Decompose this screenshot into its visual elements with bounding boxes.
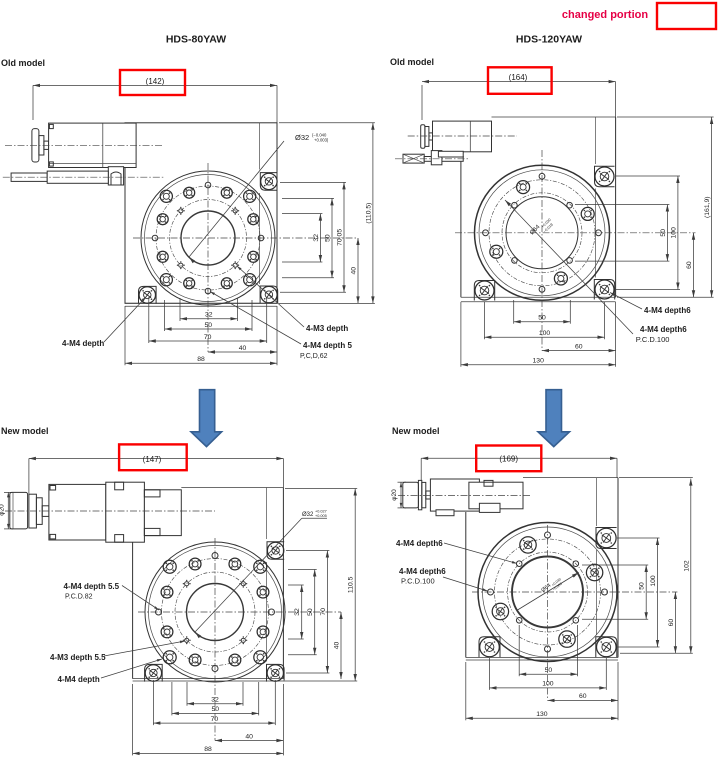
svg-text:50: 50	[212, 706, 220, 713]
svg-text:+0.027: +0.027	[315, 510, 327, 514]
svg-text:70.05: 70.05	[337, 229, 344, 246]
svg-text:Old model: Old model	[390, 57, 434, 67]
svg-text:New model: New model	[392, 426, 440, 436]
svg-text:4-M4 depth6: 4-M4 depth6	[644, 306, 691, 315]
svg-text:130: 130	[533, 358, 545, 365]
svg-text:4-M4 depth: 4-M4 depth	[62, 339, 104, 348]
svg-text:4-M4 depth6: 4-M4 depth6	[640, 325, 687, 334]
svg-text:40: 40	[351, 267, 358, 275]
svg-text:New model: New model	[1, 426, 49, 436]
svg-text:40: 40	[334, 642, 341, 650]
svg-text:4-M4 depth6: 4-M4 depth6	[396, 539, 443, 548]
svg-text:P,C,D,62: P,C,D,62	[300, 353, 328, 360]
svg-text:100: 100	[670, 227, 677, 239]
svg-text:110.5: 110.5	[348, 576, 355, 593]
svg-text:(142): (142)	[146, 77, 165, 86]
svg-text:P.C.D.100: P.C.D.100	[636, 335, 670, 344]
svg-text:50: 50	[545, 667, 553, 674]
svg-text:φ20: φ20	[0, 504, 6, 516]
svg-text:4-M4 depth 5: 4-M4 depth 5	[303, 341, 352, 350]
svg-text:40: 40	[239, 345, 247, 352]
svg-text:70: 70	[211, 716, 219, 723]
svg-text:+0.003): +0.003)	[314, 138, 329, 143]
svg-text:100: 100	[539, 330, 551, 337]
svg-text:changed portion: changed portion	[562, 9, 648, 21]
svg-text:60: 60	[575, 343, 583, 350]
svg-text:32: 32	[313, 234, 320, 242]
svg-text:Ø32: Ø32	[302, 512, 314, 518]
svg-text:4-M4 depth6: 4-M4 depth6	[399, 567, 446, 576]
svg-text:130: 130	[536, 711, 548, 718]
svg-text:50: 50	[660, 229, 667, 237]
svg-text:(110.5): (110.5)	[365, 203, 372, 224]
svg-text:100: 100	[650, 575, 657, 587]
svg-text:32: 32	[205, 312, 213, 319]
svg-text:50: 50	[307, 608, 314, 616]
svg-text:60: 60	[579, 693, 587, 700]
svg-text:(147): (147)	[143, 455, 162, 464]
svg-text:P.C.D.100: P.C.D.100	[401, 577, 435, 586]
svg-text:φ20: φ20	[391, 489, 398, 501]
svg-text:(169): (169)	[499, 455, 518, 464]
svg-text:Ø32: Ø32	[295, 133, 309, 142]
svg-text:40: 40	[245, 733, 253, 740]
svg-text:88: 88	[197, 356, 205, 363]
svg-text:50: 50	[325, 234, 332, 242]
svg-text:HDS-80YAW: HDS-80YAW	[166, 34, 226, 46]
svg-text:4-M3 depth: 4-M3 depth	[306, 324, 348, 333]
svg-text:4-M3 depth 5.5: 4-M3 depth 5.5	[50, 653, 106, 662]
svg-text:+0.005: +0.005	[315, 514, 327, 518]
svg-text:50: 50	[205, 322, 213, 329]
svg-text:50: 50	[538, 315, 546, 322]
svg-text:32: 32	[294, 608, 301, 616]
svg-text:102: 102	[683, 560, 690, 572]
svg-text:60: 60	[686, 261, 693, 269]
svg-text:50: 50	[639, 582, 646, 590]
svg-text:Old model: Old model	[1, 58, 45, 68]
svg-text:70: 70	[320, 608, 327, 616]
svg-text:70: 70	[204, 334, 212, 341]
svg-text:(164): (164)	[509, 73, 528, 82]
svg-text:4-M4 depth 5.5: 4-M4 depth 5.5	[64, 582, 120, 591]
svg-text:60: 60	[668, 619, 675, 627]
svg-text:32: 32	[211, 697, 219, 704]
svg-text:P.C.D.82: P.C.D.82	[65, 594, 93, 601]
svg-text:4-M4 depth: 4-M4 depth	[58, 675, 100, 684]
svg-text:100: 100	[542, 681, 554, 688]
svg-text:HDS-120YAW: HDS-120YAW	[516, 34, 582, 46]
svg-text:(161,9): (161,9)	[704, 196, 711, 218]
svg-text:88: 88	[204, 746, 212, 753]
